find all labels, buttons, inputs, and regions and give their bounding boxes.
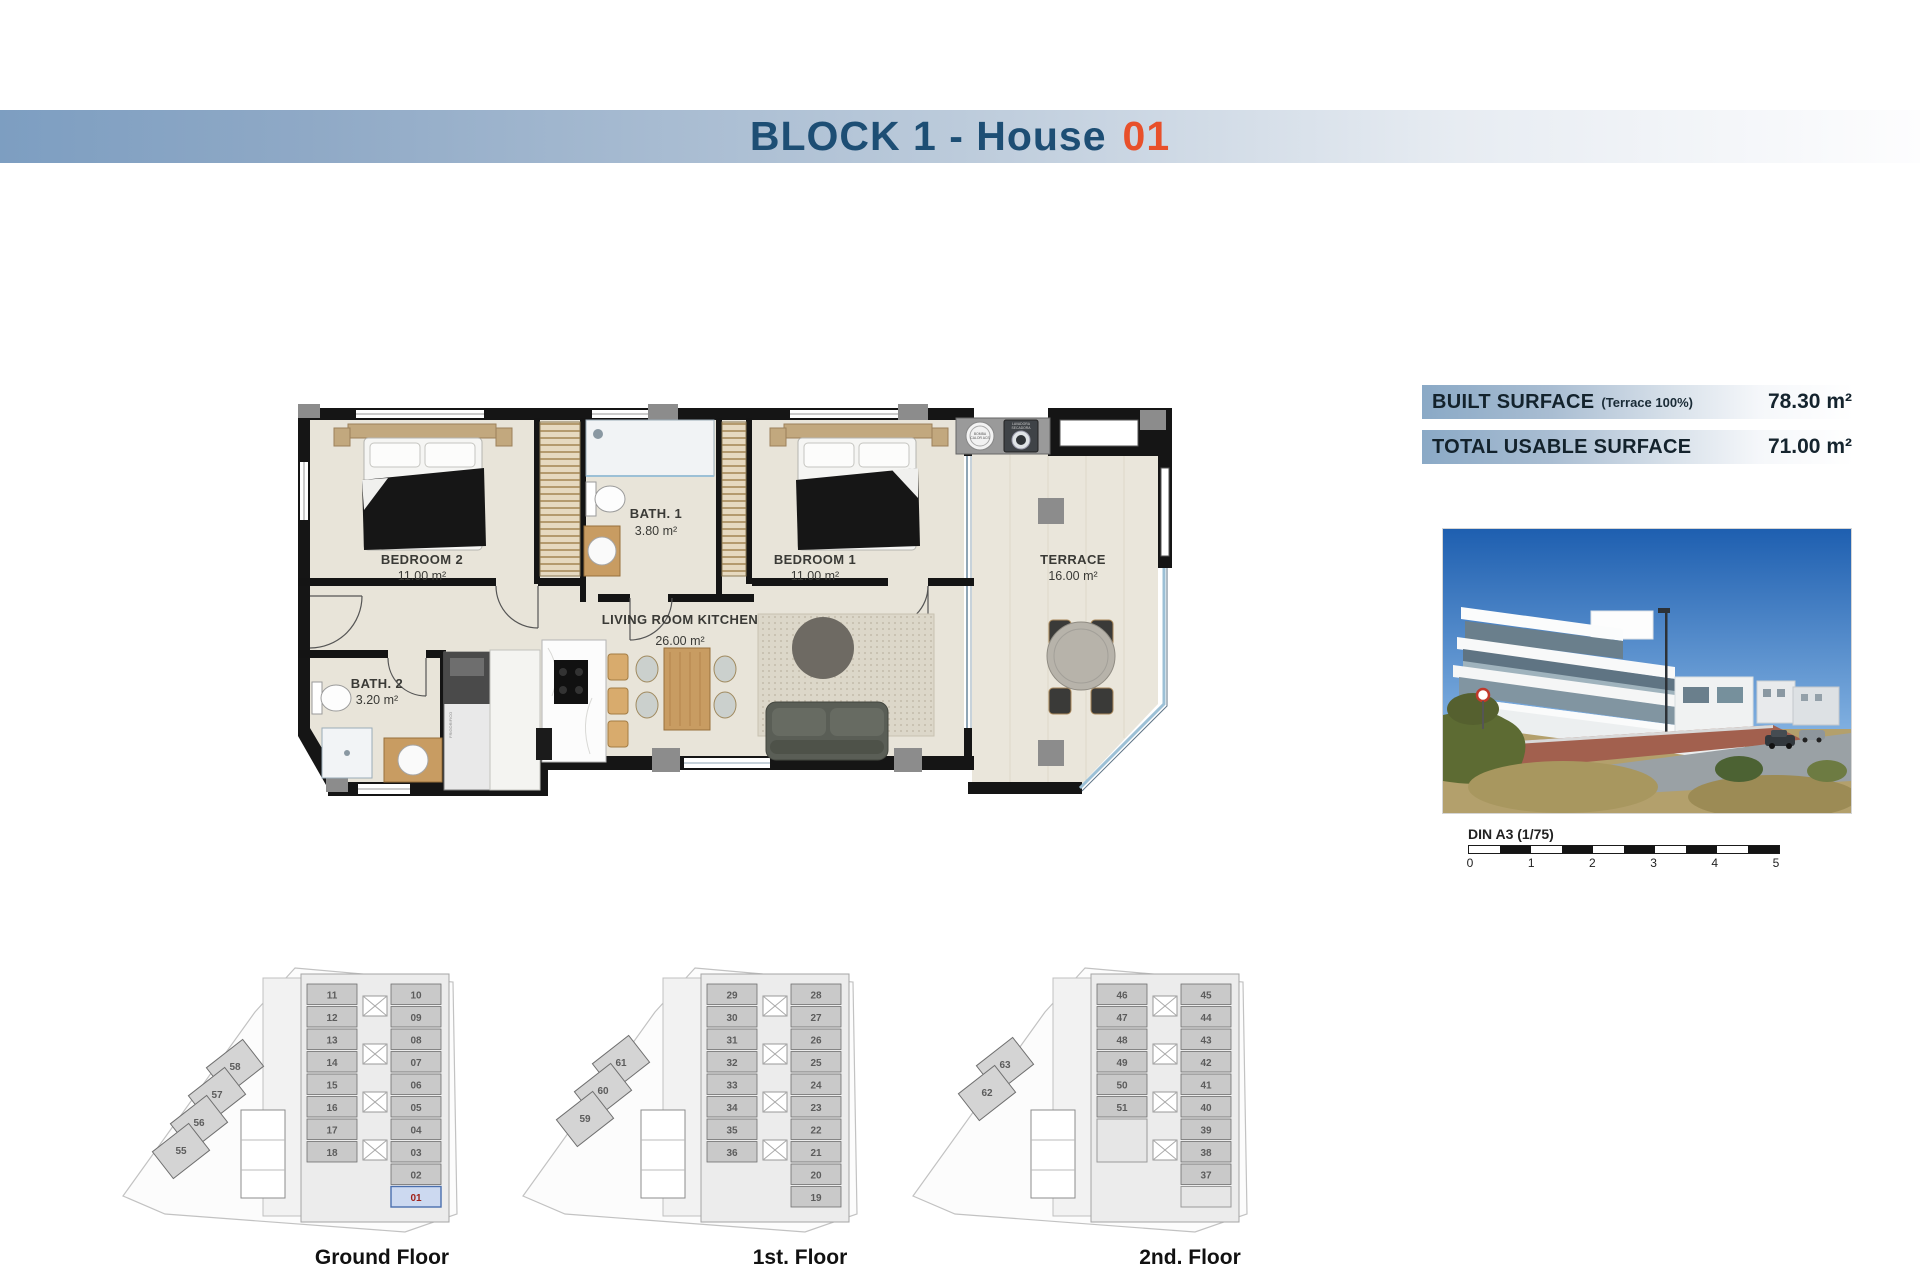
- unit-number: 19: [810, 1193, 822, 1204]
- unit-number: 32: [726, 1058, 738, 1069]
- unit-number: 45: [1200, 990, 1212, 1001]
- unit-number: 17: [326, 1125, 338, 1136]
- floor-label-2nd: 2nd. Floor: [1139, 1246, 1241, 1270]
- svg-text:3.80 m²: 3.80 m²: [635, 524, 677, 538]
- surface-value: 78.30 m²: [1768, 390, 1854, 414]
- unit-number: 50: [1116, 1080, 1128, 1091]
- scalebar-tick: 0: [1465, 856, 1475, 870]
- unit-number: 04: [410, 1125, 422, 1136]
- unit-number: 62: [981, 1088, 993, 1099]
- svg-text:11.00 m²: 11.00 m²: [398, 569, 446, 583]
- unit-number: 29: [726, 990, 738, 1001]
- unit-number: 01: [410, 1193, 422, 1204]
- unit-number: 15: [326, 1080, 338, 1091]
- unit-cell-unnumbered: [1181, 1187, 1231, 1208]
- unit-number: 31: [726, 1035, 738, 1046]
- surface-label: TOTAL USABLE SURFACE: [1432, 436, 1691, 459]
- unit-number: 40: [1200, 1103, 1212, 1114]
- unit-number: 26: [810, 1035, 822, 1046]
- wardrobe-2: [722, 422, 746, 576]
- unit-number: 43: [1200, 1035, 1212, 1046]
- header-banner: BLOCK 1 - House 01: [0, 110, 1920, 163]
- main-floorplan: BOMBA CALOR ACS LAVADORA SECADORA: [292, 398, 1172, 808]
- unit-number: 57: [211, 1090, 223, 1101]
- unit-number: 49: [1116, 1058, 1128, 1069]
- unit-number: 07: [410, 1058, 422, 1069]
- unit-number: 06: [410, 1080, 422, 1091]
- unit-number: 09: [410, 1013, 422, 1024]
- unit-number: 58: [229, 1062, 241, 1073]
- page-root: { "header": { "title_main": "BLOCK 1 - H…: [0, 0, 1920, 1280]
- unit-number: 56: [193, 1118, 205, 1129]
- unit-number: 42: [1200, 1058, 1212, 1069]
- svg-text:26.00 m²: 26.00 m²: [655, 634, 704, 648]
- scalebar-tick: 2: [1587, 856, 1597, 870]
- stair-core: [1031, 1110, 1075, 1198]
- surface-row-built: BUILT SURFACE (Terrace 100%) 78.30 m²: [1422, 385, 1854, 419]
- scalebar: DIN A3 (1/75) 0 1 2 3 4 5: [1468, 826, 1780, 870]
- unit-number: 18: [326, 1148, 338, 1159]
- unit-cell-unnumbered: [1097, 1119, 1147, 1162]
- unit-number: 25: [810, 1058, 822, 1069]
- unit-number: 24: [810, 1080, 822, 1091]
- unit-number: 30: [726, 1013, 738, 1024]
- unit-number: 05: [410, 1103, 422, 1114]
- room-label-bedroom2: BEDROOM 2: [381, 552, 463, 567]
- unit-number: 27: [810, 1013, 822, 1024]
- svg-text:11.00 m²: 11.00 m²: [791, 569, 839, 583]
- page-title: BLOCK 1 - House: [750, 113, 1107, 160]
- unit-number: 55: [175, 1146, 187, 1157]
- stair-core: [241, 1110, 285, 1198]
- unit-number: 02: [410, 1170, 422, 1181]
- unit-number: 14: [326, 1058, 338, 1069]
- surface-label: BUILT SURFACE: [1432, 391, 1594, 414]
- unit-number: 61: [615, 1058, 627, 1069]
- unit-number: 10: [410, 990, 422, 1001]
- room-label-bath2: BATH. 2: [351, 676, 403, 691]
- unit-number: 20: [810, 1170, 822, 1181]
- fridge-label: FRIGORIFICO: [448, 712, 453, 738]
- unit-number: 33: [726, 1080, 738, 1091]
- unit-number: 46: [1116, 990, 1128, 1001]
- svg-text:16.00 m²: 16.00 m²: [1048, 569, 1097, 583]
- unit-number: 12: [326, 1013, 338, 1024]
- utility-area: BOMBA CALOR ACS LAVADORA SECADORA: [956, 418, 1050, 454]
- scalebar-tick: 1: [1526, 856, 1536, 870]
- unit-number: 60: [597, 1086, 609, 1097]
- svg-text:SECADORA: SECADORA: [1011, 426, 1031, 430]
- unit-number: 63: [999, 1060, 1011, 1071]
- scalebar-ticks: 0 1 2 3 4 5: [1465, 856, 1781, 870]
- terrace-slider: [964, 408, 972, 770]
- unit-number: 23: [810, 1103, 822, 1114]
- unit-number: 13: [326, 1035, 338, 1046]
- unit-number: 08: [410, 1035, 422, 1046]
- scalebar-tick: 4: [1710, 856, 1720, 870]
- unit-number: 11: [327, 990, 338, 1001]
- surface-row-usable: TOTAL USABLE SURFACE 71.00 m²: [1422, 430, 1854, 464]
- unit-number: 28: [810, 990, 822, 1001]
- room-label-bedroom1: BEDROOM 1: [774, 552, 856, 567]
- page-title-number: 01: [1123, 113, 1171, 160]
- surface-value: 71.00 m²: [1768, 435, 1854, 459]
- scalebar-label: DIN A3 (1/75): [1468, 826, 1780, 842]
- scalebar-tick: 5: [1771, 856, 1781, 870]
- unit-number: 35: [726, 1125, 738, 1136]
- wardrobe-1: [540, 422, 580, 576]
- unit-number: 47: [1116, 1013, 1128, 1024]
- unit-number: 44: [1200, 1013, 1212, 1024]
- room-label-terrace: TERRACE: [1040, 552, 1106, 567]
- scalebar-tick: 3: [1649, 856, 1659, 870]
- unit-number: 51: [1116, 1103, 1128, 1114]
- mini-floorplan-2nd-floor: 4647484950514544434241403938376362: [895, 962, 1270, 1262]
- mini-floorplan-1st-floor: 2930313233343536282726252423222120196160…: [505, 962, 880, 1262]
- surface-note: (Terrace 100%): [1601, 395, 1693, 410]
- unit-number: 03: [410, 1148, 422, 1159]
- unit-number: 39: [1200, 1125, 1212, 1136]
- floor-label-1st: 1st. Floor: [753, 1246, 848, 1270]
- svg-text:3.20 m²: 3.20 m²: [356, 693, 398, 707]
- stair-core: [641, 1110, 685, 1198]
- mini-floorplan-ground-floor: 1112131415161718100908070605040302015857…: [105, 962, 480, 1262]
- room-label-living: LIVING ROOM KITCHEN: [602, 612, 758, 627]
- unit-number: 59: [579, 1114, 591, 1125]
- unit-number: 36: [726, 1148, 738, 1159]
- unit-number: 37: [1200, 1170, 1212, 1181]
- room-label-bath1: BATH. 1: [630, 506, 682, 521]
- unit-number: 34: [726, 1103, 738, 1114]
- unit-number: 21: [810, 1148, 822, 1159]
- scalebar-ruler: [1468, 845, 1780, 854]
- unit-number: 41: [1200, 1080, 1212, 1091]
- building-photo: [1442, 528, 1852, 814]
- unit-number: 38: [1200, 1148, 1212, 1159]
- unit-number: 16: [326, 1103, 338, 1114]
- unit-number: 48: [1116, 1035, 1128, 1046]
- unit-number: 22: [810, 1125, 822, 1136]
- svg-text:CALOR ACS: CALOR ACS: [970, 436, 990, 440]
- floor-label-ground: Ground Floor: [315, 1246, 449, 1270]
- surface-table: BUILT SURFACE (Terrace 100%) 78.30 m² TO…: [1422, 385, 1854, 475]
